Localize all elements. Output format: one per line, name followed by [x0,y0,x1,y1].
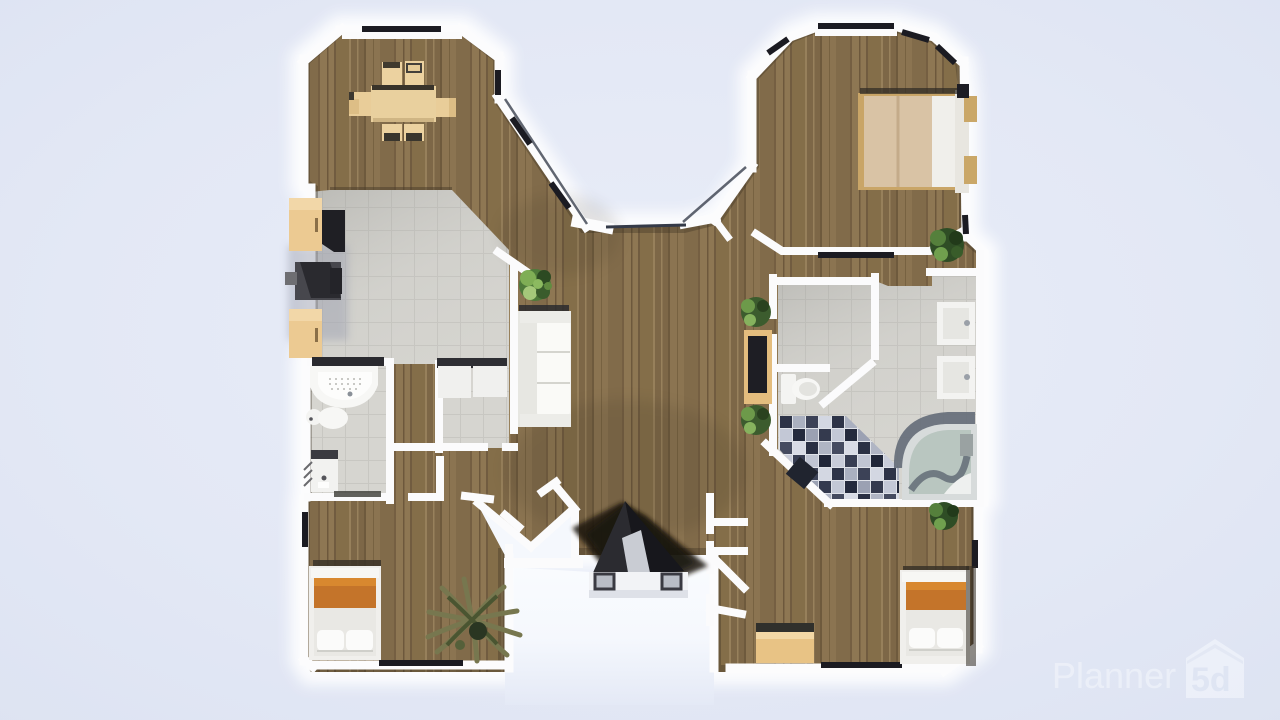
svg-text:Planner: Planner [1052,655,1176,696]
svg-text:5d: 5d [1191,661,1231,699]
